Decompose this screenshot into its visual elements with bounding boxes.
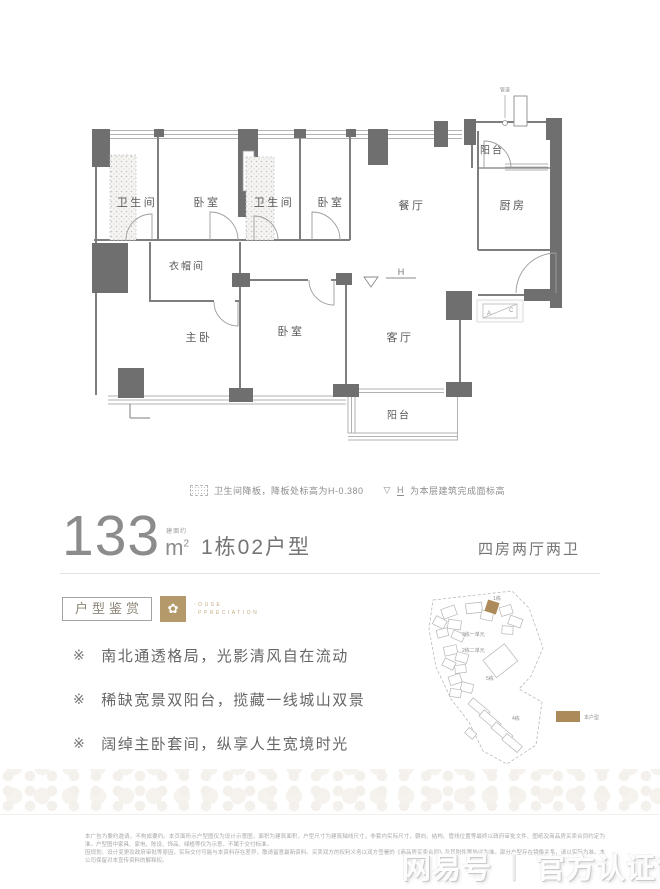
room-label-living: 客厅	[387, 329, 414, 345]
level-marker-label: H	[398, 267, 405, 277]
room-label-bedroom-3: 卧室	[278, 323, 305, 339]
room-label-master-bedroom: 主卧	[186, 329, 213, 345]
feature-text-2: 稀缺宽景双阳台，揽藏一线城山双景	[101, 689, 365, 710]
site-label-1: 1栋	[493, 595, 501, 602]
site-label-4: 4栋	[512, 715, 520, 722]
area-unit: m2	[165, 535, 189, 560]
plan-doors	[126, 141, 556, 326]
area-unit-block: 建面约 m2	[165, 535, 189, 560]
feature-text-1: 南北通透格局，光影清风自在流动	[101, 645, 349, 666]
room-label-balcony-top: 阳台	[480, 142, 504, 157]
room-label-bathroom-1: 卫生间	[117, 194, 158, 210]
room-label-bathroom-2: 卫生间	[254, 194, 295, 210]
site-label-5: 5栋	[486, 675, 494, 682]
legend-note-2: 为本层建筑完成面标高	[410, 484, 505, 497]
site-legend-swatch	[556, 711, 580, 722]
room-label-balcony-bottom: 阳台	[387, 407, 411, 422]
watermark-label: 官方认证售楼处	[536, 853, 660, 885]
site-map: 1栋 2栋一单元 2栋二单元 5栋 4栋 本户型	[429, 591, 599, 764]
layout-type: 四房两厅两卫	[478, 538, 580, 559]
unit-name: 1栋02户型	[201, 536, 311, 560]
room-label-bedroom-2: 卧室	[318, 194, 345, 210]
plan-walls	[92, 118, 562, 402]
feature-list: ※ 南北通透格局，光影清风自在流动 ※ 稀缺宽景双阳台，揽藏一线城山双景 ※ 阔…	[73, 645, 365, 777]
watermark: 网易号丨官方认证售楼处	[402, 845, 660, 887]
appreciation-en-line2: ·PPRECIATION	[194, 611, 259, 616]
feature-item: ※ 稀缺宽景双阳台，揽藏一线城山双景	[73, 689, 365, 710]
feature-item: ※ 南北通透格局，光影清风自在流动	[73, 645, 365, 666]
level-triangle-icon: ▽	[384, 485, 391, 496]
area-unit-sup: 2	[183, 539, 189, 550]
plan-legend: 卫生间降板，降板处标高为H-0.380 ▽ H 为本层建筑完成面标高	[190, 484, 505, 497]
reference-mark-icon: ※	[73, 691, 86, 708]
watermark-brand: 网易号	[402, 853, 492, 885]
watermark-divider: 丨	[499, 853, 529, 885]
level-marker: H	[364, 267, 416, 287]
flower-icon: ✿	[160, 596, 186, 622]
feature-item: ※ 阔绰主卧套间，纵享人生宽境时光	[73, 733, 365, 754]
pipe-label: 管道	[500, 87, 510, 94]
appreciation-badge-row: 户型鉴赏 ✿ ·OUSE ·PPRECIATION	[62, 596, 259, 622]
pipe-shaft	[503, 95, 527, 126]
ac-label-a: A	[487, 311, 491, 317]
room-label-kitchen: 厨房	[500, 197, 527, 213]
site-legend-label: 本户型	[584, 714, 599, 721]
ac-platform: A C	[477, 300, 523, 322]
legend-note-1: 卫生间降板，降板处标高为H-0.380	[214, 484, 364, 497]
plan-windows	[106, 131, 548, 441]
legend-h-symbol: H	[397, 486, 404, 496]
area-prefix: 建面约	[166, 526, 187, 535]
room-label-bedroom-1: 卧室	[194, 194, 221, 210]
appreciation-en: ·OUSE ·PPRECIATION	[194, 603, 259, 616]
listing-page: H A C	[0, 0, 660, 889]
area-unit-letter: m	[165, 535, 183, 560]
appreciation-en-line1: ·OUSE	[194, 603, 259, 608]
appreciation-badge: 户型鉴赏	[62, 597, 152, 621]
reference-mark-icon: ※	[73, 735, 86, 752]
feature-text-3: 阔绰主卧套间，纵享人生宽境时光	[101, 733, 349, 754]
ac-label-c: C	[509, 308, 514, 314]
room-label-cloakroom: 衣帽间	[169, 258, 205, 273]
title-divider	[60, 573, 600, 574]
hatch-swatch-icon	[190, 485, 208, 496]
site-label-2a: 2栋一单元	[462, 631, 485, 638]
unit-title-row: 133 建面约 m2 1栋02户型	[62, 512, 311, 560]
site-label-2b: 2栋二单元	[462, 647, 485, 654]
area-value: 133	[62, 512, 160, 560]
reference-mark-icon: ※	[73, 647, 86, 664]
room-label-dining: 餐厅	[399, 197, 426, 213]
plan-thin-walls	[94, 122, 560, 418]
